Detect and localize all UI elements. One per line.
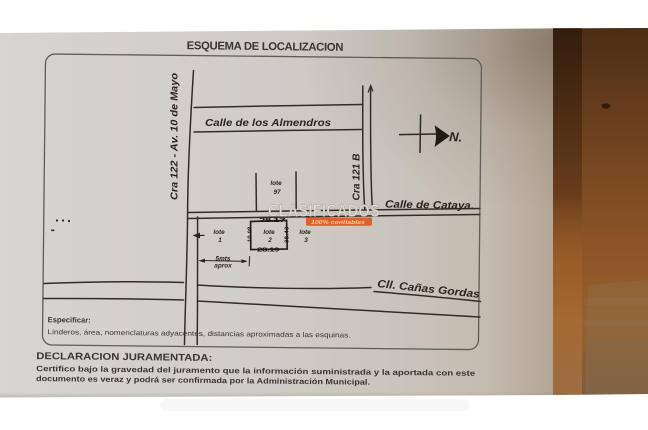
svg-text:Cra 121 B: Cra 121 B [352,154,363,201]
svg-text:Especificar:: Especificar: [48,315,91,324]
svg-text:Calle de Cataya.: Calle de Cataya. [385,199,474,213]
svg-text:Calle de los Almendros: Calle de los Almendros [205,117,331,129]
svg-text:lote: lote [299,229,311,236]
svg-text:lote: lote [213,229,225,236]
svg-text:aprox: aprox [214,263,232,270]
svg-text:lote: lote [263,229,275,236]
svg-text:2: 2 [267,237,272,244]
svg-text:5mts: 5mts [216,256,231,263]
svg-text:Cra 122 - Av. 10 de Mayo: Cra 122 - Av. 10 de Mayo [170,73,181,200]
svg-text:38.43: 38.43 [285,226,291,243]
svg-text:ESQUEMA DE LOCALIZACION: ESQUEMA DE LOCALIZACION [187,40,344,54]
svg-text:28.19: 28.19 [257,248,281,254]
svg-text:N.: N. [449,129,463,145]
svg-text:97: 97 [273,189,281,196]
svg-text:100% confiables: 100% confiables [311,220,366,226]
svg-text:1: 1 [218,237,222,244]
svg-text:lote: lote [270,180,282,187]
svg-text:10.08: 10.08 [248,226,254,242]
svg-text:DECLARACION JURAMENTADA:: DECLARACION JURAMENTADA: [36,351,212,364]
svg-text:3: 3 [304,237,308,244]
